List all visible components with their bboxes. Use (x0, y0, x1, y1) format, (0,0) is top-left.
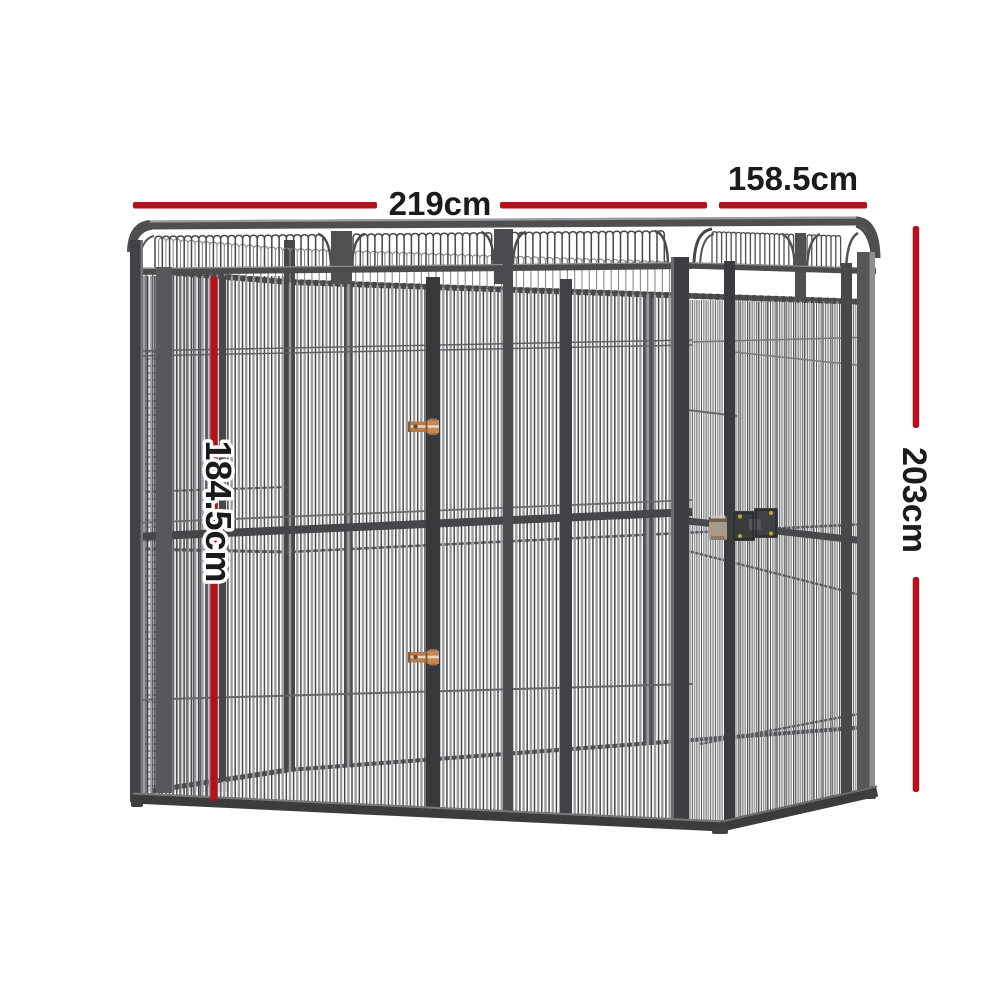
svg-text:203cm: 203cm (895, 447, 933, 553)
svg-text:219cm: 219cm (389, 185, 492, 222)
svg-text:158.5cm: 158.5cm (728, 160, 858, 197)
svg-text:184.5cm: 184.5cm (198, 440, 239, 582)
